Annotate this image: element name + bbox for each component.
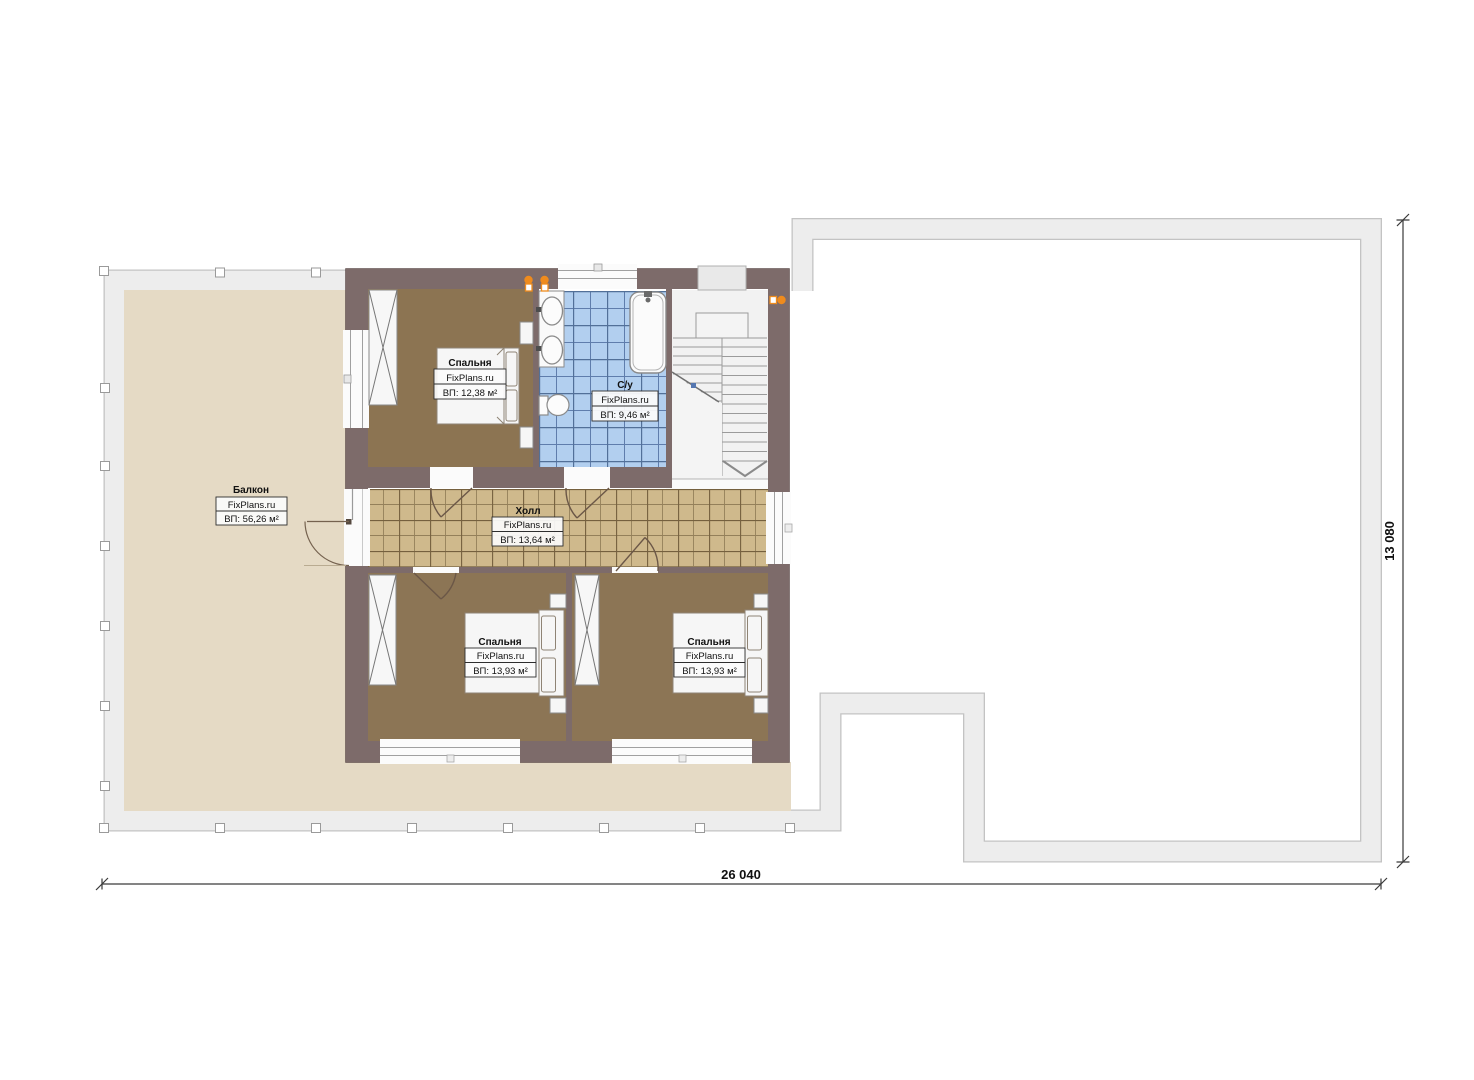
svg-text:ВП: 13,93 м²: ВП: 13,93 м² (682, 666, 737, 677)
svg-text:Спальня: Спальня (687, 637, 730, 648)
svg-text:Холл: Холл (515, 506, 540, 517)
svg-text:26 040: 26 040 (721, 867, 761, 882)
svg-text:ВП: 13,93 м²: ВП: 13,93 м² (473, 666, 528, 677)
svg-text:ВП: 9,46 м²: ВП: 9,46 м² (600, 410, 649, 421)
svg-text:ВП: 13,64 м²: ВП: 13,64 м² (500, 535, 555, 546)
svg-text:С/у: С/у (617, 380, 633, 391)
svg-text:FixPlans.ru: FixPlans.ru (477, 651, 525, 662)
svg-text:ВП: 12,38 м²: ВП: 12,38 м² (443, 388, 498, 399)
svg-text:FixPlans.ru: FixPlans.ru (446, 373, 494, 384)
svg-text:13 080: 13 080 (1382, 521, 1397, 561)
svg-text:FixPlans.ru: FixPlans.ru (228, 500, 276, 511)
svg-text:Балкон: Балкон (233, 485, 269, 496)
svg-text:FixPlans.ru: FixPlans.ru (504, 520, 552, 531)
svg-text:Спальня: Спальня (478, 637, 521, 648)
svg-text:FixPlans.ru: FixPlans.ru (686, 651, 734, 662)
svg-text:Спальня: Спальня (448, 358, 491, 369)
svg-text:FixPlans.ru: FixPlans.ru (601, 395, 649, 406)
svg-text:ВП: 56,26 м²: ВП: 56,26 м² (224, 514, 279, 525)
